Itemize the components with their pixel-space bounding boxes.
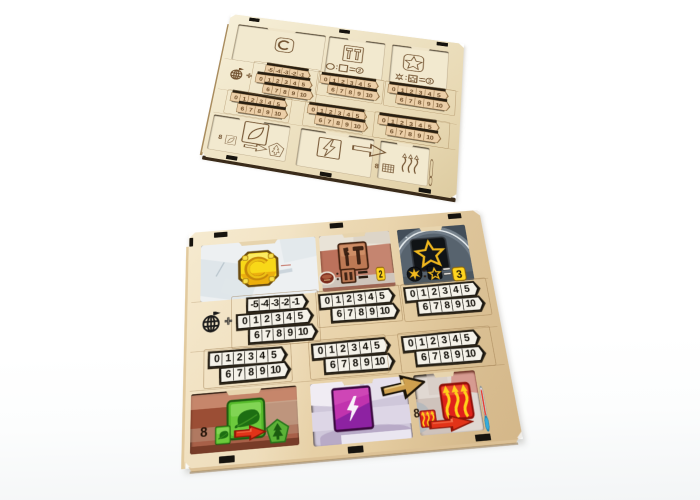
svg-text:2: 2 bbox=[358, 68, 362, 73]
svg-text:3: 3 bbox=[428, 78, 432, 84]
